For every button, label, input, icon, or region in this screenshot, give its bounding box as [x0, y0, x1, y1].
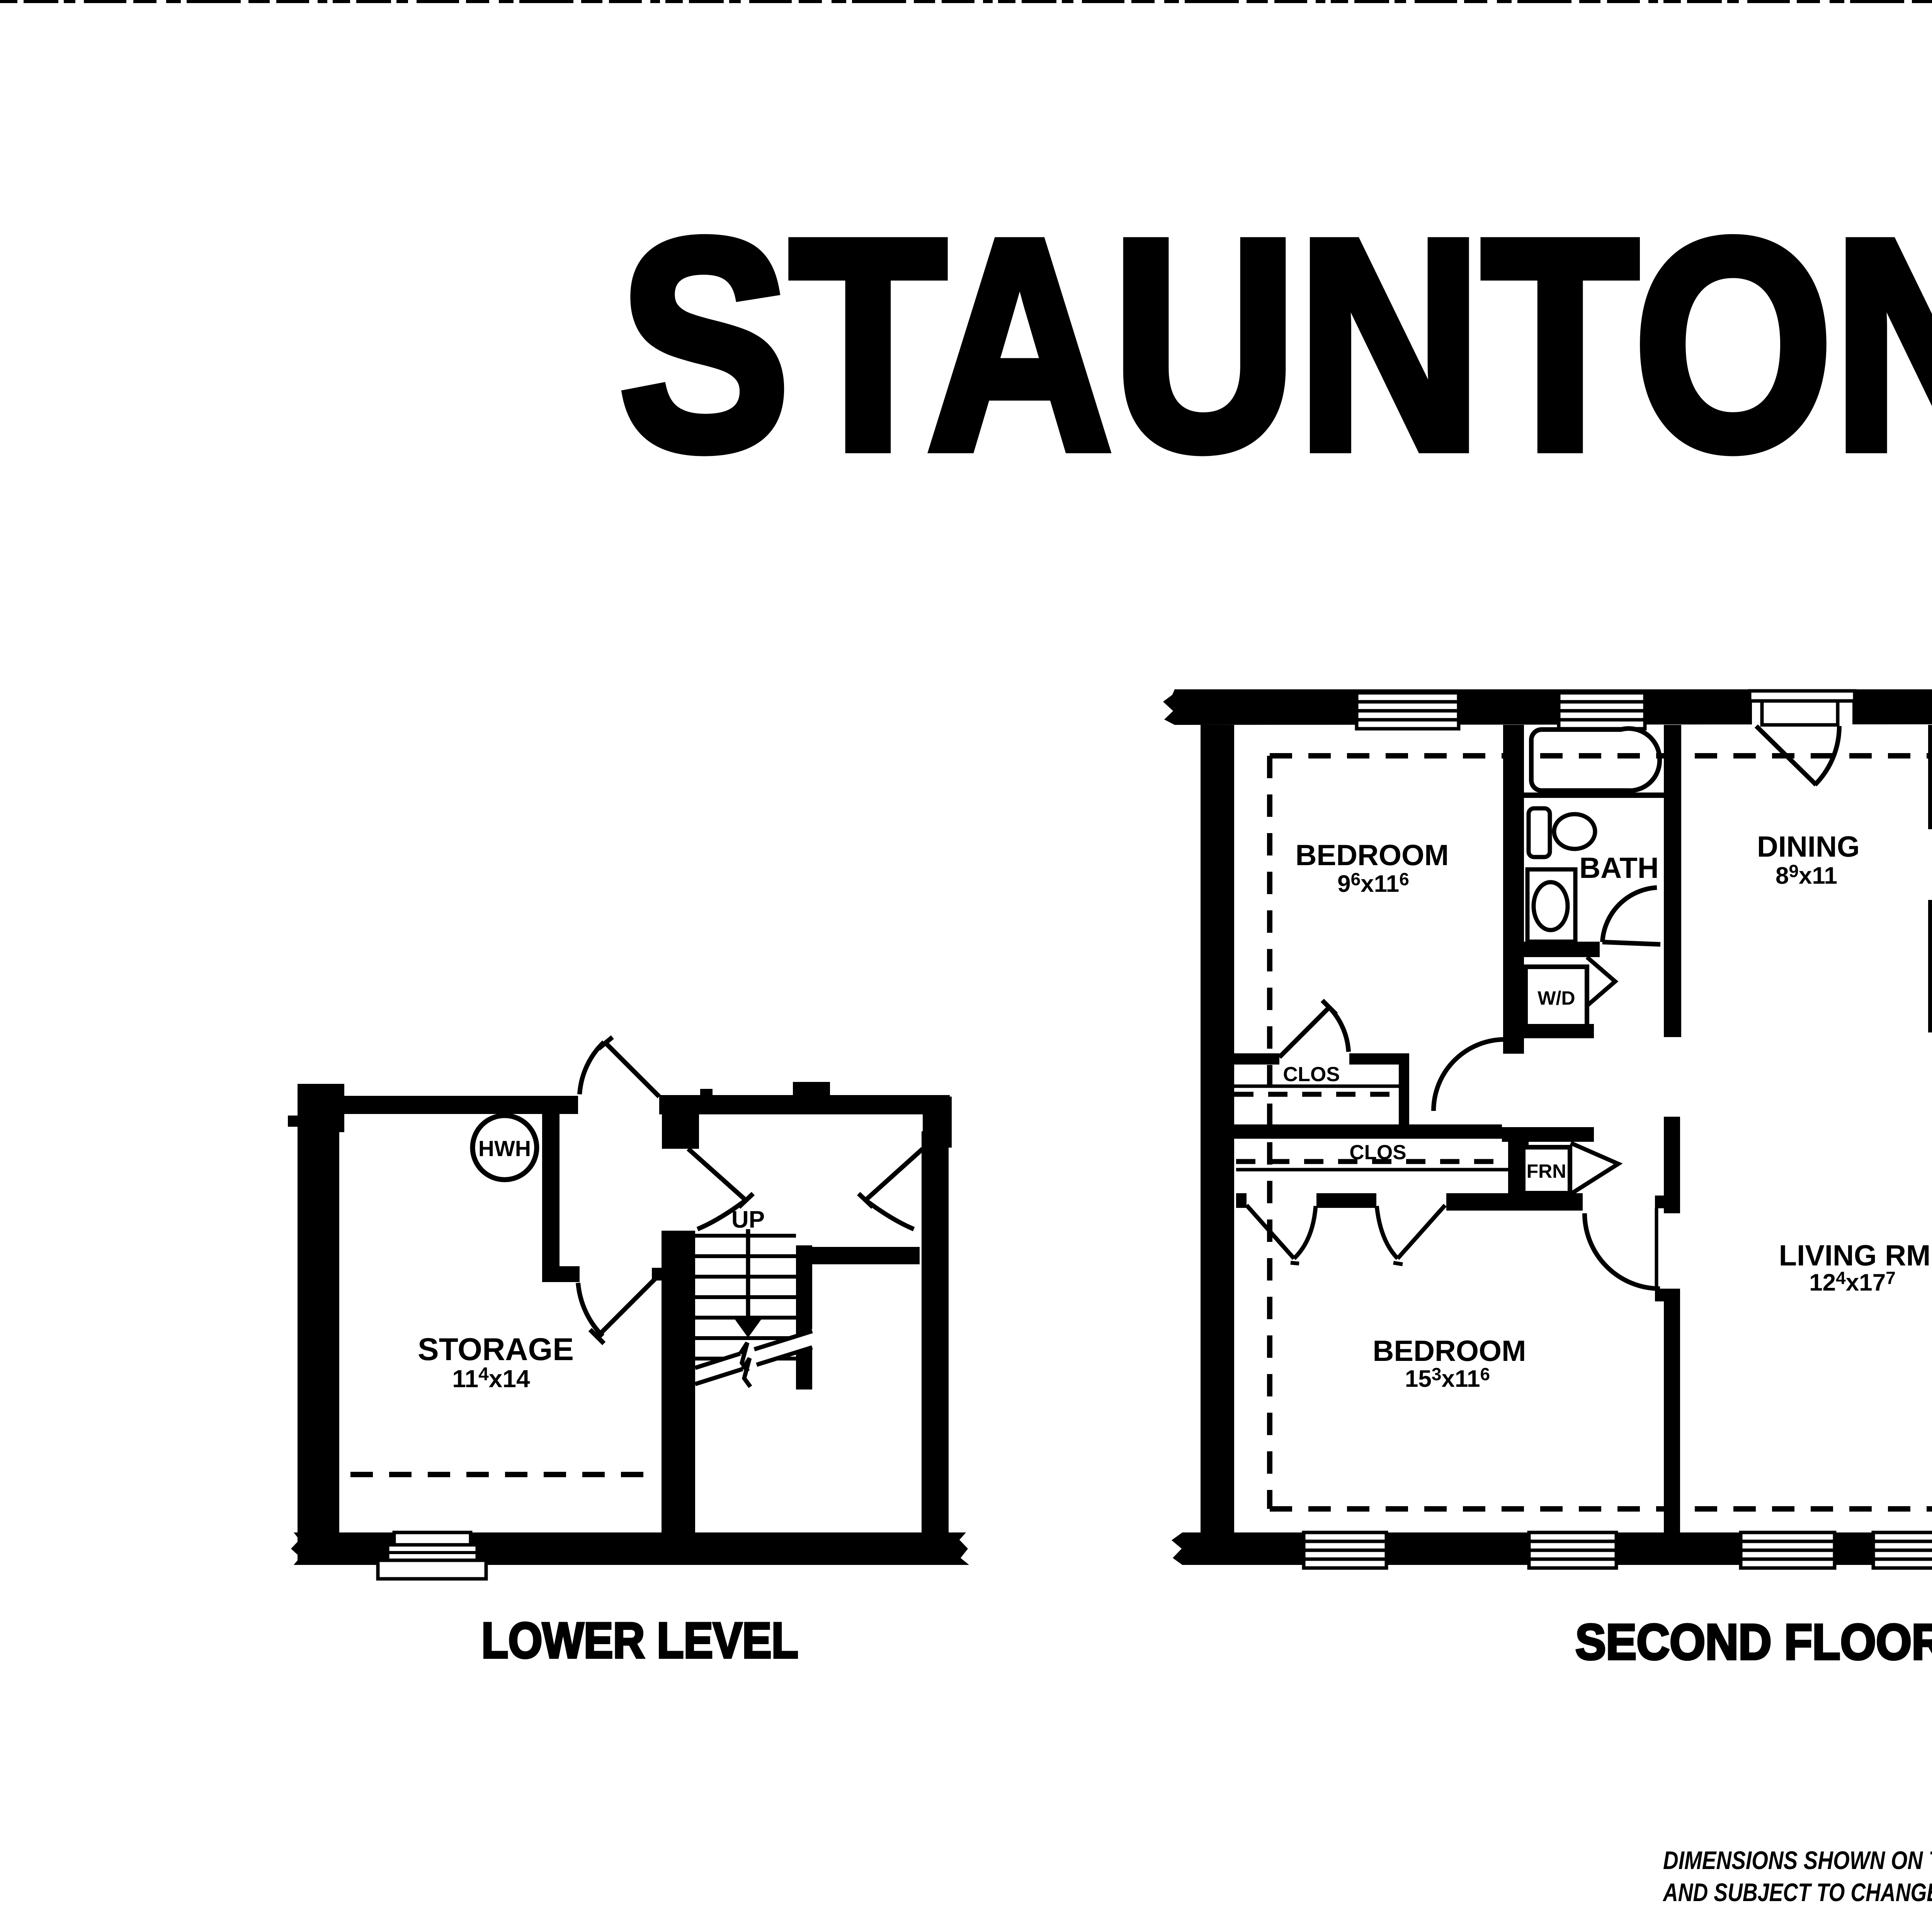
svg-text:FRN: FRN [1527, 1160, 1566, 1182]
svg-text:DIMENSIONS SHOWN ON THESE FLOO: DIMENSIONS SHOWN ON THESE FLOOR PLANS AR… [1663, 1846, 1932, 1874]
svg-text:W/D: W/D [1537, 987, 1575, 1009]
svg-text:AND SUBJECT TO CHANGE.: AND SUBJECT TO CHANGE. [1662, 1878, 1932, 1906]
svg-text:DINING: DINING [1757, 830, 1860, 863]
svg-text:LOWER LEVEL: LOWER LEVEL [481, 1612, 798, 1668]
svg-text:CLOS: CLOS [1283, 1063, 1340, 1086]
svg-text:114x14: 114x14 [452, 1364, 530, 1393]
svg-text:BEDROOM: BEDROOM [1296, 839, 1449, 872]
svg-text:UP: UP [731, 1206, 765, 1233]
svg-text:STAUNTON: STAUNTON [619, 177, 1932, 512]
svg-text:BEDROOM: BEDROOM [1373, 1335, 1526, 1367]
svg-text:LIVING RM: LIVING RM [1779, 1239, 1931, 1272]
svg-text:89x11: 89x11 [1776, 861, 1837, 889]
svg-text:STORAGE: STORAGE [418, 1332, 574, 1367]
svg-text:153x116: 153x116 [1405, 1364, 1490, 1392]
svg-text:CLOS: CLOS [1349, 1141, 1406, 1164]
svg-text:96x116: 96x116 [1337, 869, 1409, 897]
svg-text:HWH: HWH [478, 1136, 531, 1161]
svg-text:124x177: 124x177 [1809, 1268, 1896, 1296]
svg-text:SECOND FLOOR: SECOND FLOOR [1575, 1614, 1932, 1670]
svg-text:BATH: BATH [1579, 852, 1658, 884]
